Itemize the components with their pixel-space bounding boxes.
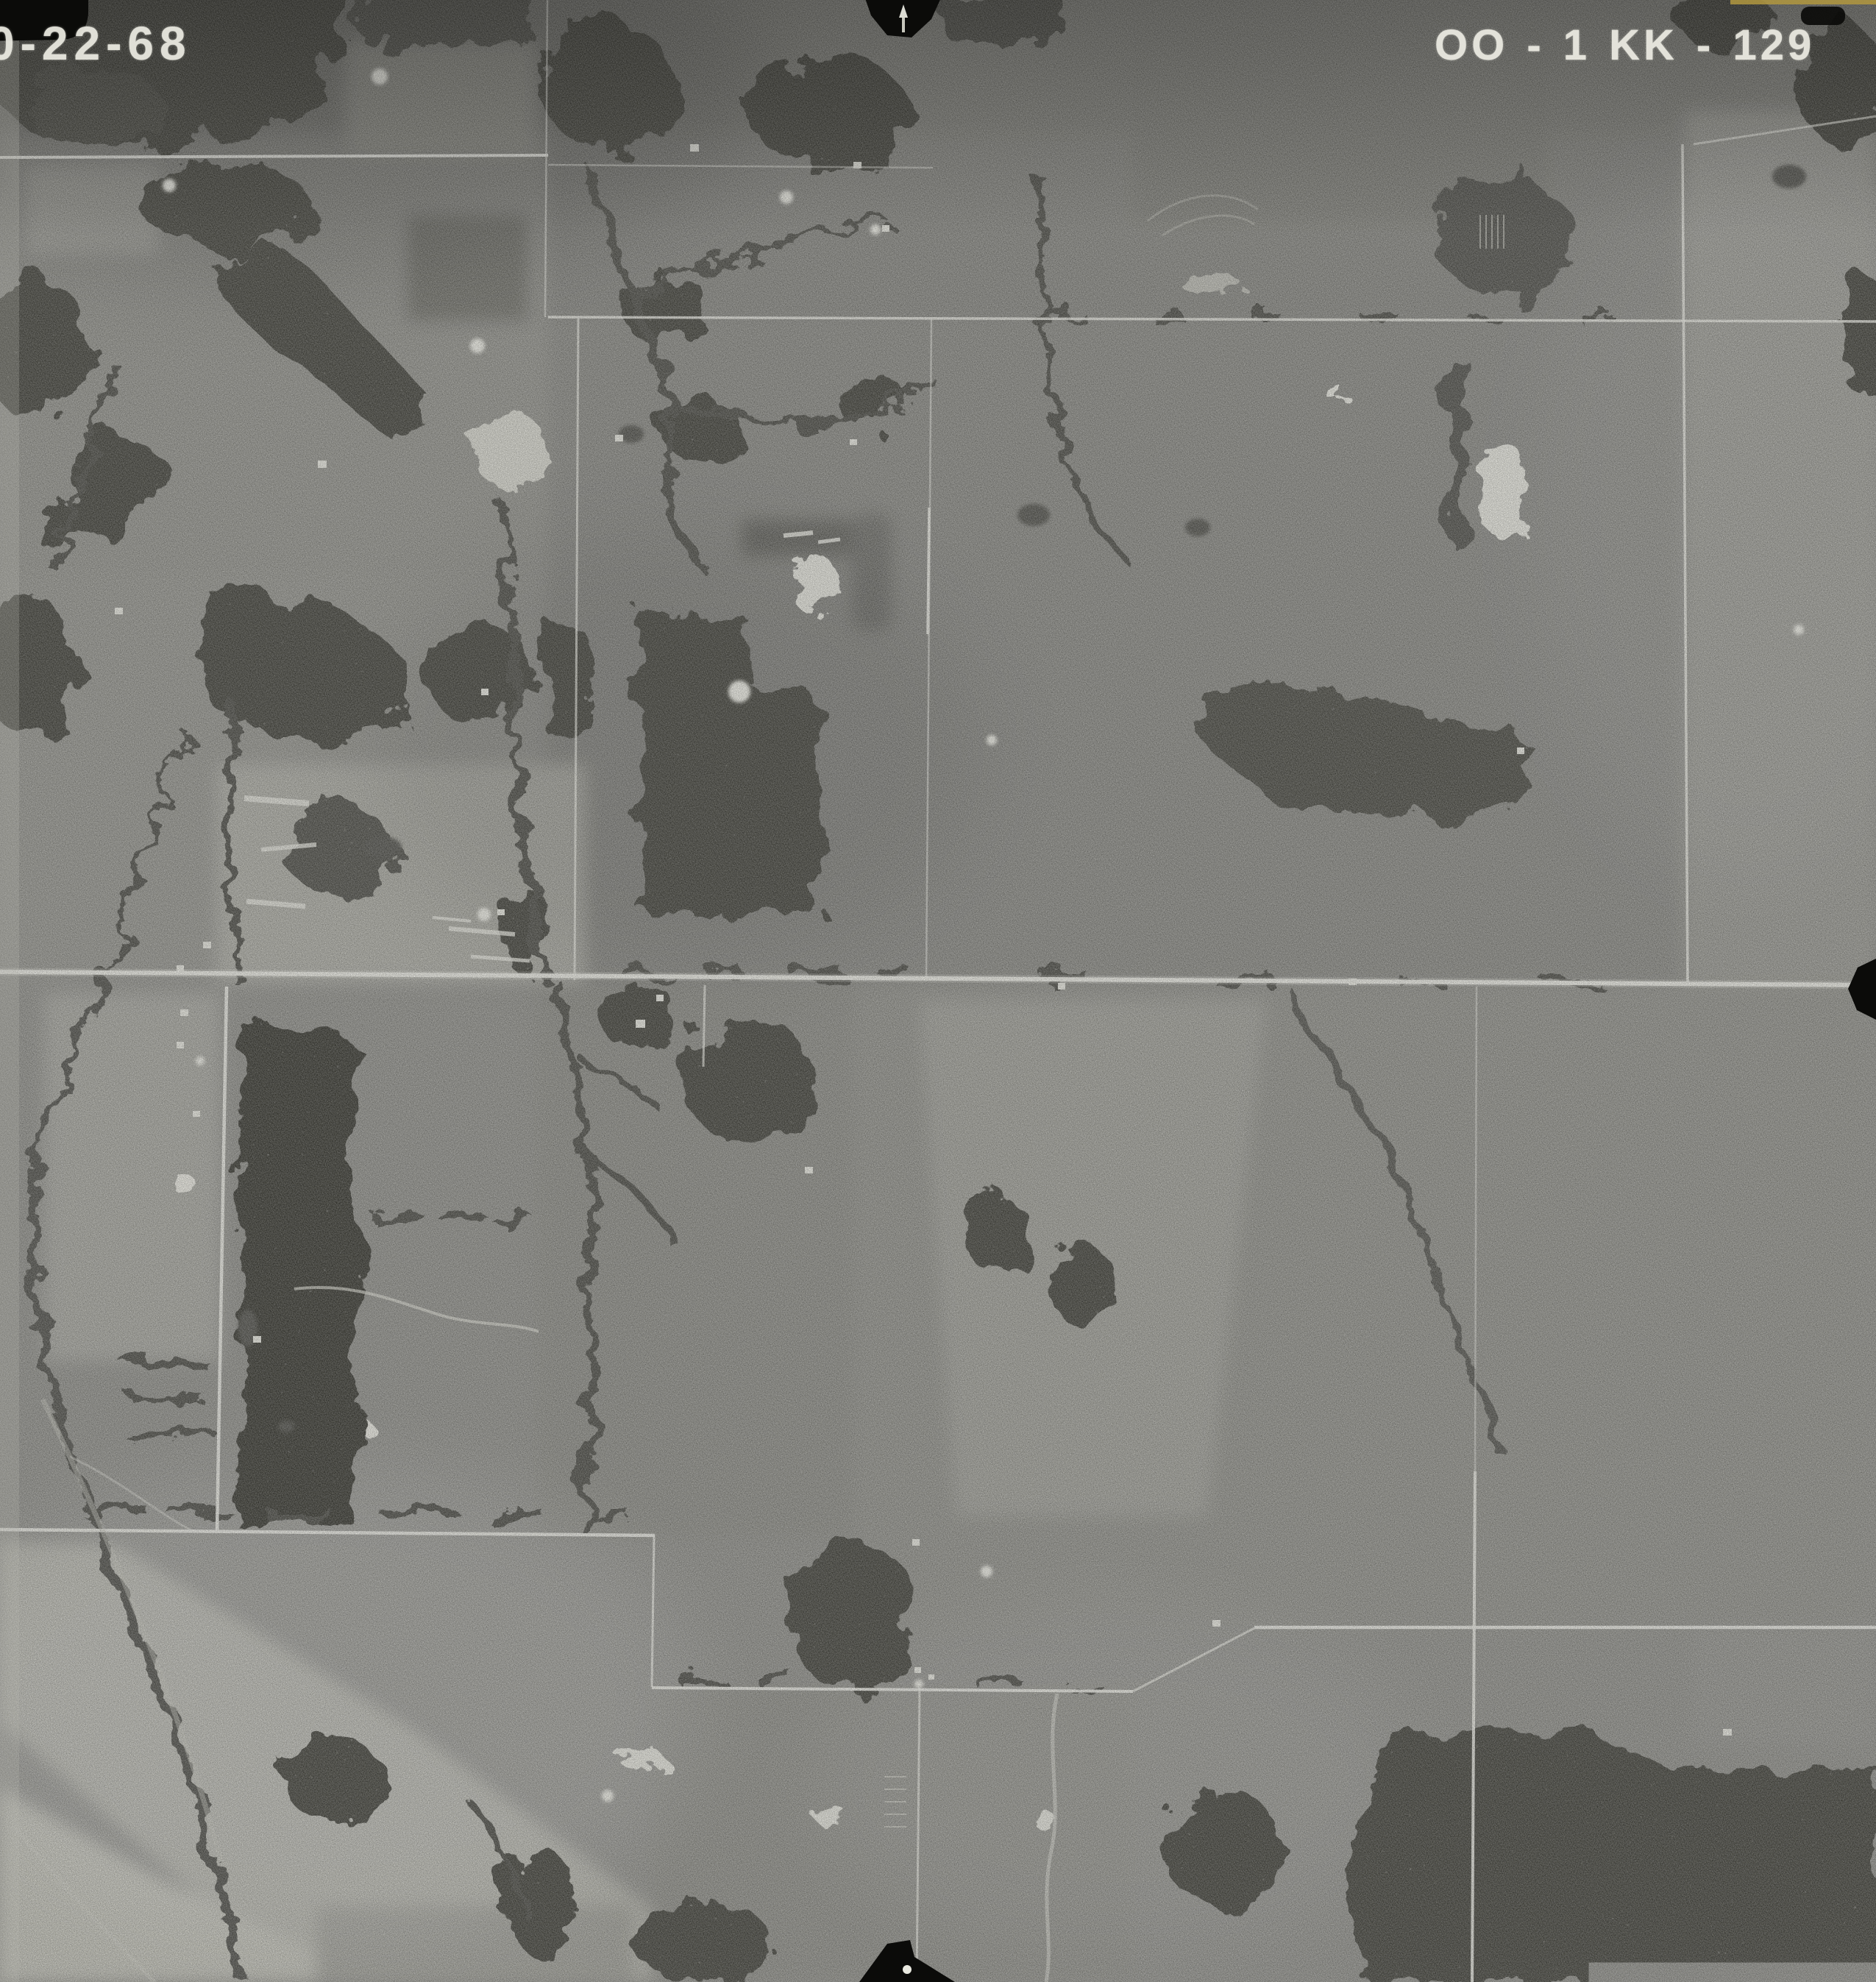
aerial-photo-scan: 0-22-68 OO - 1 KK - 129 [0,0,1876,1982]
photo-id-label: OO - 1 KK - 129 [1435,21,1815,70]
photo-date-label: 0-22-68 [0,16,192,71]
aerial-photo-art [0,0,1876,1982]
fiducial-arrow-stem [902,16,905,32]
fiducial-dot-icon [903,1965,912,1974]
film-grain-overlay [0,0,1876,1982]
film-edge-tan-strip [1730,0,1876,4]
